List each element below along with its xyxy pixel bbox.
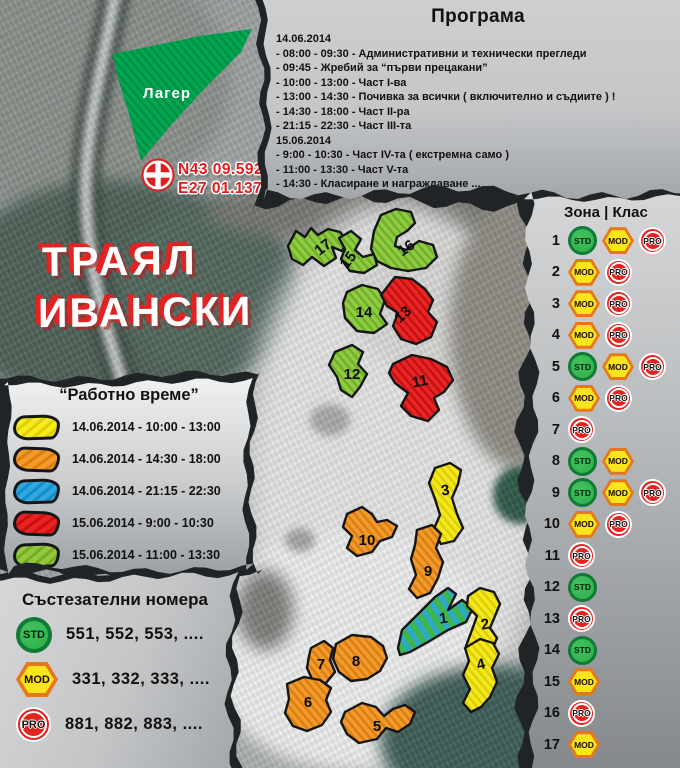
mod-badge: MOD <box>568 511 600 538</box>
work-time-row: 14.06.2014 - 14:30 - 18:00 <box>4 443 254 475</box>
zone-class-table: 1STDMODPRO2MODPRO3MODPRO4MODPRO5STDMODPR… <box>524 225 680 761</box>
zone-label: 9 <box>424 563 432 580</box>
zone-class-badges: PRO <box>568 605 595 632</box>
mod-badge: MOD <box>602 353 634 380</box>
pro-badge: PRO <box>639 227 666 254</box>
zone-number: 3 <box>532 296 560 312</box>
program-line: - 9:00 - 10:30 - Част IV-та ( екстремна … <box>276 148 680 163</box>
mod-badge-label: MOD <box>571 388 597 409</box>
zone-label: 12 <box>344 366 361 383</box>
std-badge: STD <box>568 226 597 255</box>
zone-label: 14 <box>356 304 373 321</box>
pro-badge: PRO <box>639 353 666 380</box>
mod-badge-label: MOD <box>605 356 631 377</box>
work-time-swatch <box>13 510 61 537</box>
zone-number: 17 <box>532 737 560 753</box>
work-time-row: 14.06.2014 - 10:00 - 13:00 <box>4 411 254 443</box>
numbers-row: STD551, 552, 553, .... <box>0 612 240 657</box>
numbers-row: MOD331, 332, 333, .... <box>0 657 240 702</box>
pro-badge: PRO <box>605 511 632 538</box>
zone-label: 8 <box>352 653 360 670</box>
pro-badge: PRO <box>639 479 666 506</box>
pro-badge: PRO <box>605 290 632 317</box>
pro-badge-label: PRO <box>609 519 627 529</box>
zone-class-row: 9STDMODPRO <box>524 477 680 509</box>
zone-class-row: 13PRO <box>524 603 680 635</box>
mod-badge: MOD <box>568 290 600 317</box>
zone-class-panel: Зона | Клас 1STDMODPRO2MODPRO3MODPRO4MOD… <box>524 192 680 768</box>
zone-class-row: 3MODPRO <box>524 288 680 320</box>
pro-badge-label: PRO <box>572 708 590 718</box>
zone-class-row: 6MODPRO <box>524 383 680 415</box>
mod-badge: MOD <box>602 448 634 475</box>
program-line: - 08:00 - 09:30 - Административни и техн… <box>276 47 680 62</box>
zone-class-badges: MODPRO <box>568 385 632 412</box>
program-line: - 13:00 - 14:30 - Почивка за всички ( вк… <box>276 90 680 105</box>
pro-badge-label: PRO <box>643 488 661 498</box>
zone-class-row: 16PRO <box>524 698 680 730</box>
pro-badge: PRO <box>568 416 595 443</box>
pro-badge-label: PRO <box>643 236 661 246</box>
zone-class-badges: MOD <box>568 731 600 758</box>
zone-label: 6 <box>304 694 312 711</box>
zone-class-badges: MODPRO <box>568 322 632 349</box>
zone-class-badges: PRO <box>568 416 595 443</box>
zone-number: 4 <box>532 327 560 343</box>
std-badge: STD <box>568 447 597 476</box>
zone-class-badges: STDMODPRO <box>568 478 666 507</box>
zone-label: 7 <box>317 656 325 673</box>
mod-badge-label: MOD <box>605 451 631 472</box>
program-line: - 14:30 - 18:00 - Част II-ра <box>276 105 680 120</box>
mod-badge: MOD <box>602 227 634 254</box>
zone-label: 5 <box>373 718 381 735</box>
mod-badge: MOD <box>568 668 600 695</box>
zone-class-row: 11PRO <box>524 540 680 572</box>
zone-number: 9 <box>532 485 560 501</box>
work-time-row: 15.06.2014 - 9:00 - 10:30 <box>4 507 254 539</box>
work-time-swatch <box>13 446 61 473</box>
work-time-label: 14.06.2014 - 14:30 - 18:00 <box>72 452 221 466</box>
mod-badge: MOD <box>568 731 600 758</box>
program-line: - 10:00 - 13:00 - Част I-ва <box>276 76 680 91</box>
zone-class-badges: STD <box>568 573 597 602</box>
mod-badge: MOD <box>568 385 600 412</box>
zone-number: 11 <box>532 548 560 564</box>
zone-class-row: 8STDMOD <box>524 446 680 478</box>
numbers-row: PRO881, 882, 883, .... <box>0 702 240 747</box>
mod-badge-label: MOD <box>571 293 597 314</box>
zone-class-badges: STDMODPRO <box>568 352 666 381</box>
numbers-panel: Състезателни номера STD551, 552, 553, ..… <box>0 572 240 768</box>
zone-number: 13 <box>532 611 560 627</box>
program-line: - 09:45 - Жребий за “първи прецакани” <box>276 61 680 76</box>
zone-number: 8 <box>532 453 560 469</box>
zone-class-badges: STD <box>568 636 597 665</box>
gps-marker-icon <box>143 160 174 191</box>
pro-badge-label: PRO <box>572 425 590 435</box>
zone-class-row: 12STD <box>524 572 680 604</box>
numbers-list: STD551, 552, 553, ....MOD331, 332, 333, … <box>0 612 240 747</box>
program-schedule: 14.06.2014- 08:00 - 09:30 - Администрати… <box>276 32 680 192</box>
zone-number: 15 <box>532 674 560 690</box>
pro-badge-label: PRO <box>609 393 627 403</box>
pro-badge: PRO <box>605 385 632 412</box>
zone-class-badges: PRO <box>568 542 595 569</box>
zone-class-badges: MODPRO <box>568 511 632 538</box>
mod-badge: MOD <box>568 259 600 286</box>
mod-badge: MOD <box>16 662 58 697</box>
mod-badge-label: MOD <box>605 482 631 503</box>
work-time-legend: 14.06.2014 - 10:00 - 13:0014.06.2014 - 1… <box>4 411 254 571</box>
std-badge: STD <box>568 573 597 602</box>
program-line: 15.06.2014 <box>276 134 680 149</box>
mod-badge-label: MOD <box>605 230 631 251</box>
numbers-value: 551, 552, 553, .... <box>66 625 204 644</box>
program-line: 14.06.2014 <box>276 32 680 47</box>
zone-area-4 <box>463 639 499 712</box>
pro-badge: PRO <box>605 259 632 286</box>
work-time-label: 14.06.2014 - 10:00 - 13:00 <box>72 420 221 434</box>
zone-class-badges: MODPRO <box>568 259 632 286</box>
zone-class-row: 5STDMODPRO <box>524 351 680 383</box>
mod-badge: MOD <box>568 322 600 349</box>
work-time-swatch <box>13 414 61 441</box>
zone-number: 6 <box>532 390 560 406</box>
std-badge: STD <box>16 617 52 653</box>
std-badge: STD <box>568 636 597 665</box>
numbers-title: Състезателни номера <box>22 590 240 610</box>
work-time-panel: “Работно време” 14.06.2014 - 10:00 - 13:… <box>4 378 254 574</box>
mod-badge-label: MOD <box>571 325 597 346</box>
mod-badge-label: MOD <box>571 734 597 755</box>
zone-class-header: Зона | Клас <box>564 204 680 221</box>
zone-class-row: 15MOD <box>524 666 680 698</box>
poster: ТРАЯЛ ИВАНСКИ N43 09.592 E27 01.137 1715… <box>0 0 680 768</box>
pro-badge-label: PRO <box>609 299 627 309</box>
pro-badge: PRO <box>568 605 595 632</box>
pro-badge: PRO <box>568 542 595 569</box>
zone-class-badges: MOD <box>568 668 600 695</box>
zone-class-badges: STDMODPRO <box>568 226 666 255</box>
zone-class-badges: STDMOD <box>568 447 634 476</box>
zone-class-row: 17MOD <box>524 729 680 761</box>
program-line: - 11:00 - 13:30 - Част V-та <box>276 163 680 178</box>
zone-label: 10 <box>359 532 376 549</box>
work-time-swatch <box>13 478 61 505</box>
work-time-label: 15.06.2014 - 9:00 - 10:30 <box>72 516 214 530</box>
pro-badge-label: PRO <box>22 719 46 731</box>
zone-number: 10 <box>532 516 560 532</box>
mod-badge-label: MOD <box>571 514 597 535</box>
pro-badge-label: PRO <box>609 267 627 277</box>
zone-class-row: 14STD <box>524 635 680 667</box>
pro-badge: PRO <box>568 700 595 727</box>
work-time-label: 15.06.2014 - 11:00 - 13:30 <box>72 548 220 562</box>
pro-badge-label: PRO <box>572 551 590 561</box>
zone-area-9 <box>409 525 443 598</box>
mod-badge-label: MOD <box>571 262 597 283</box>
work-time-row: 14.06.2014 - 21:15 - 22:30 <box>4 475 254 507</box>
zone-number: 12 <box>532 579 560 595</box>
zone-class-badges: PRO <box>568 700 595 727</box>
zone-class-row: 7PRO <box>524 414 680 446</box>
pro-badge-label: PRO <box>643 362 661 372</box>
program-line: - 21:15 - 22:30 - Част III-та <box>276 119 680 134</box>
std-badge: STD <box>568 352 597 381</box>
zone-number: 1 <box>532 233 560 249</box>
work-time-title: “Работно време” <box>4 386 254 405</box>
pro-badge-label: PRO <box>572 614 590 624</box>
work-time-label: 14.06.2014 - 21:15 - 22:30 <box>72 484 221 498</box>
zone-class-row: 4MODPRO <box>524 320 680 352</box>
pro-badge: PRO <box>16 707 51 742</box>
numbers-value: 331, 332, 333, .... <box>72 670 210 689</box>
mod-badge-label: MOD <box>571 671 597 692</box>
camp-label: Лагер <box>143 85 191 102</box>
zone-class-row: 2MODPRO <box>524 257 680 289</box>
zone-area-1 <box>398 588 473 655</box>
pro-badge-label: PRO <box>609 330 627 340</box>
zone-class-row: 1STDMODPRO <box>524 225 680 257</box>
mod-badge-label: MOD <box>20 666 54 693</box>
program-title: Програма <box>276 6 680 28</box>
zone-class-row: 10MODPRO <box>524 509 680 541</box>
pro-badge: PRO <box>605 322 632 349</box>
numbers-value: 881, 882, 883, .... <box>65 715 203 734</box>
mod-badge: MOD <box>602 479 634 506</box>
zone-number: 2 <box>532 264 560 280</box>
program-panel: Програма 14.06.2014- 08:00 - 09:30 - Адм… <box>260 0 680 200</box>
std-badge: STD <box>568 478 597 507</box>
zone-class-badges: MODPRO <box>568 290 632 317</box>
